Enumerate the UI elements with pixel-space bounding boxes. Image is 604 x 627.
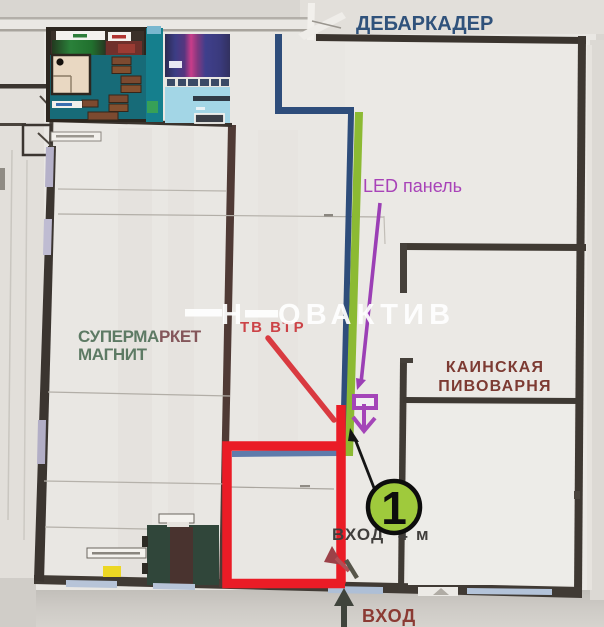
svg-text:1: 1 [381,482,407,534]
svg-text:ПИВОВАРНЯ: ПИВОВАРНЯ [438,378,551,395]
svg-text:LED панель: LED панель [363,176,462,196]
svg-text:ОВАКТИВ: ОВАКТИВ [278,299,455,331]
svg-text:МАГНИТ: МАГНИТ [78,345,148,364]
svg-text:ВХОД: ВХОД [362,606,416,626]
svg-text:м: м [416,525,429,544]
svg-text:ДЕБАРКАДЕР: ДЕБАРКАДЕР [356,13,493,35]
svg-text:Н: Н [221,299,242,331]
svg-text:КАИНСКАЯ: КАИНСКАЯ [446,359,544,376]
svg-text:СУПЕРМАРКЕТ: СУПЕРМАРКЕТ [78,327,202,346]
